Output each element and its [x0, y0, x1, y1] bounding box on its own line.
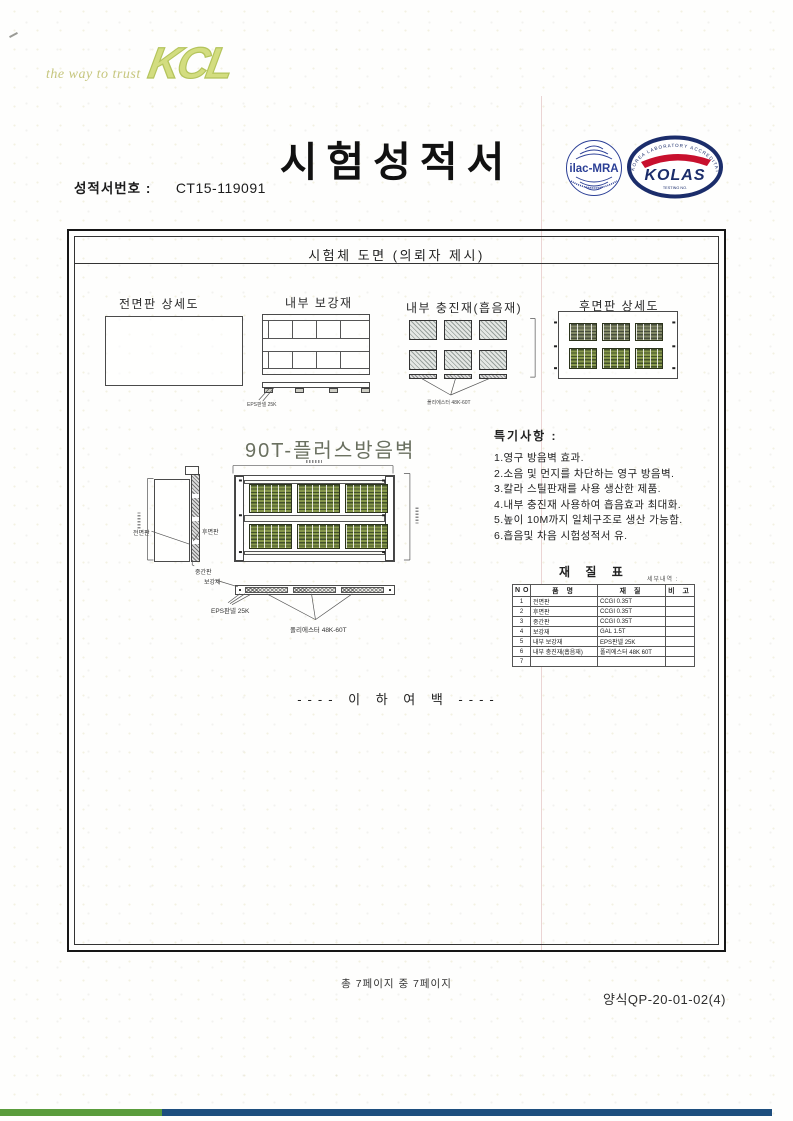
rear-grid-panel: [569, 348, 597, 369]
form-number-text: 양식QP-20-01-02(4): [603, 989, 726, 1008]
plan-end-dot: [389, 589, 391, 591]
rear-grid-panel: [635, 348, 663, 369]
eps-callout: EPS판넬 25K: [211, 605, 249, 615]
material-table-row: 6내부 충진재(흡음재)폴리에스터 48K 60T: [513, 647, 695, 657]
foot: [264, 388, 273, 393]
material-table-cell: [598, 657, 666, 667]
material-table-cell: 3: [513, 617, 531, 627]
material-table-note: 세부내역 :: [647, 574, 678, 583]
note-item: 6.흡음및 차음 시험성적서 유.: [494, 529, 683, 545]
material-table-cell: [531, 657, 598, 667]
rear-grid-panel: [602, 348, 630, 369]
foot: [329, 388, 338, 393]
report-page: the way to trust KCL 시험성적서 성적서번호 : CT15-…: [0, 0, 793, 1121]
drawing-box-title: 시험체 도면 (의뢰자 제시): [75, 237, 718, 264]
note-item: 1.영구 방음벽 효과.: [494, 451, 683, 467]
side-view-body: [154, 479, 190, 562]
col-name: 품 명: [531, 585, 598, 597]
brand-tagline: the way to trust: [46, 67, 141, 82]
elevation-grid-panel: [345, 524, 388, 549]
material-table-cell: [666, 597, 695, 607]
material-table-cell: [666, 617, 695, 627]
plan-xhatch-seg: [245, 587, 288, 593]
material-table-cell: EPS판넬 25K: [598, 637, 666, 647]
plan-xhatch-seg: [341, 587, 384, 593]
material-table-cell: 5: [513, 637, 531, 647]
reinf-base-strip: [262, 382, 370, 388]
material-table-cell: 폴리에스터 48K 60T: [598, 647, 666, 657]
kolas-logo: KOREA LABORATORY ACCREDITATION SCHEME KO…: [626, 135, 724, 199]
plan-end-dot: [239, 589, 241, 591]
kolas-text: KOLAS: [645, 167, 706, 184]
filler-strip: [409, 374, 437, 379]
col-mat: 재 질: [598, 585, 666, 597]
plan-view-bar: [235, 585, 395, 595]
reinf-band: [268, 321, 364, 338]
material-table-cell: 6: [513, 647, 531, 657]
kolas-sub-text: TESTING NO.: [663, 186, 687, 190]
front-detail-label: 전면판 상세도: [119, 295, 199, 312]
mid-panel-callout: 중간판: [195, 567, 212, 576]
ilac-mra-text: ilac-MRA: [569, 163, 618, 175]
rear-panel-callout: 후면판: [202, 527, 219, 536]
report-number-value: CT15-119091: [176, 180, 266, 196]
scan-pen-mark: [9, 32, 18, 38]
rear-grid-panel: [569, 323, 597, 341]
filler-square: [479, 350, 507, 370]
front-panel-rect: [105, 316, 243, 386]
material-table-cell: [666, 627, 695, 637]
elevation-grid-panel: [297, 484, 340, 513]
material-table-row: 1전면판CCGI 0.35T: [513, 597, 695, 607]
elevation-grid-panel: [345, 484, 388, 513]
reinf-rail: [263, 368, 369, 369]
filler-strip: [479, 374, 507, 379]
reinf-rail: [263, 338, 369, 339]
dimension-text-mark: [306, 460, 322, 463]
ilac-mra-logo: ilac-MRA: [564, 137, 624, 199]
material-table-row: 5내부 보강재EPS판넬 25K: [513, 637, 695, 647]
material-table-header-row: NO 품 명 재 질 비 고: [513, 585, 695, 597]
material-table-cell: 7: [513, 657, 531, 667]
dimension-text-mark: [138, 513, 141, 529]
filler-square: [409, 320, 437, 340]
elevation-grid-panel: [249, 484, 292, 513]
note-item: 4.내부 충진재 사용하여 흡음효과 최대화.: [494, 498, 683, 514]
filler-square: [409, 350, 437, 370]
inner-reinf-label: 내부 보강재: [285, 294, 353, 311]
filler-square: [444, 350, 472, 370]
side-view-core-strip: [191, 474, 200, 562]
material-table: NO 품 명 재 질 비 고 1전면판CCGI 0.35T2후면판CCGI 0.…: [512, 584, 695, 667]
kcl-logo: KCL: [146, 44, 234, 84]
material-table-cell: 1: [513, 597, 531, 607]
eps-small-label: EPS판넬 25K: [247, 401, 277, 408]
foot: [295, 388, 304, 393]
inner-filler-label: 내부 충진재(흡음재): [406, 299, 522, 316]
material-table-cell: 2: [513, 607, 531, 617]
rear-grid-panel: [635, 323, 663, 341]
material-table-cell: [666, 647, 695, 657]
report-number-label: 성적서번호 :: [74, 181, 151, 196]
material-table-cell: CCGI 0.35T: [598, 597, 666, 607]
material-table-cell: 중간판: [531, 617, 598, 627]
kcl-brand: the way to trust KCL: [46, 44, 231, 84]
reinf-band: [268, 352, 364, 368]
material-table-cell: 내부 충진재(흡음재): [531, 647, 598, 657]
reinf-callout: 보강재: [204, 577, 221, 586]
elevation-rail: [244, 551, 385, 555]
plan-xhatch-seg: [293, 587, 336, 593]
poly-small-label: 폴리에스터 48K-60T: [427, 399, 471, 406]
blank-below-text: ---- 이 하 여 백 ----: [69, 689, 728, 708]
footer-bar-green: [0, 1109, 162, 1116]
material-table-cell: GAL 1.5T: [598, 627, 666, 637]
foot: [361, 388, 370, 393]
elevation-grid-panel: [297, 524, 340, 549]
material-table-cell: 4: [513, 627, 531, 637]
product-title: 90T-플러스방음벽: [245, 434, 415, 463]
filler-square: [479, 320, 507, 340]
inner-reinf-rect: [262, 314, 370, 375]
notes-list: 1.영구 방음벽 효과.2.소음 및 먼지를 차단하는 영구 방음벽.3.칼라 …: [494, 451, 683, 544]
footer-bar-blue: [162, 1109, 772, 1116]
elevation-rail: [244, 515, 385, 522]
dimension-text-mark: [416, 508, 419, 524]
material-table-title: 재 질 표: [559, 563, 629, 580]
report-number-row: 성적서번호 : CT15-119091: [74, 177, 266, 198]
material-table-cell: [666, 657, 695, 667]
material-table-cell: 내부 보강재: [531, 637, 598, 647]
col-no: NO: [513, 585, 531, 597]
notes-title: 특기사항 :: [494, 427, 558, 444]
specimen-drawing-box: 시험체 도면 (의뢰자 제시) 전면판 상세도 내부 보강재 EPS판넬 25K…: [67, 229, 726, 952]
front-panel-callout: 전면판: [133, 528, 150, 537]
note-item: 5.높이 10M까지 일체구조로 생산 가능함.: [494, 513, 683, 529]
material-table-cell: 보강재: [531, 627, 598, 637]
material-table-cell: CCGI 0.35T: [598, 617, 666, 627]
material-table-row: 7: [513, 657, 695, 667]
note-item: 3.칼라 스틸판재를 사용 생산한 제품.: [494, 482, 683, 498]
filler-strip: [444, 374, 472, 379]
rear-grid-panel: [602, 323, 630, 341]
material-table-cell: [666, 637, 695, 647]
material-table-cell: 후면판: [531, 607, 598, 617]
elevation-left-post: [235, 476, 244, 561]
material-table-cell: CCGI 0.35T: [598, 607, 666, 617]
material-table-row: 4보강재GAL 1.5T: [513, 627, 695, 637]
material-table-cell: [666, 607, 695, 617]
poly-callout: 폴리에스터 48K-60T: [290, 624, 347, 634]
material-table-row: 3중간판CCGI 0.35T: [513, 617, 695, 627]
material-table-row: 2후면판CCGI 0.35T: [513, 607, 695, 617]
filler-square: [444, 320, 472, 340]
col-remark: 비 고: [666, 585, 695, 597]
material-table-cell: 전면판: [531, 597, 598, 607]
note-item: 2.소음 및 먼지를 차단하는 영구 방음벽.: [494, 467, 683, 483]
elevation-grid-panel: [249, 524, 292, 549]
